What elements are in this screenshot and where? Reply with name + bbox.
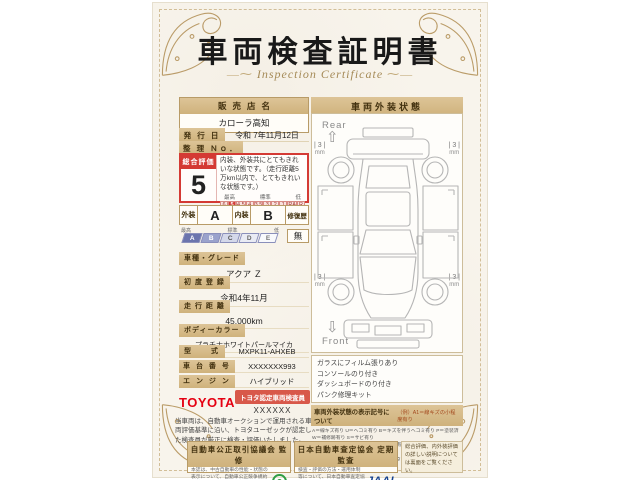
note-line: ガラスにフィルム張りあり	[317, 359, 457, 370]
evaluation-description: 内装、外装共にとてもきれいな状態です。（走行距離5万km以内で、とてもきれいな状…	[220, 157, 305, 193]
evaluation-scale-labels: 最高 標準 低	[220, 193, 305, 201]
certified-inspector-badge: トヨタ認定車両検査員	[235, 390, 310, 404]
repair-history-label: 修復歴	[286, 206, 308, 224]
interior-grade-label: 内装	[233, 206, 251, 224]
car-diagram-box: Rear ⇧ Front ⇩ | 3 | mm | 3 | mm | 3 | m…	[311, 113, 463, 353]
spec-value: XXXXXXX993	[235, 362, 309, 371]
spec-label: 車 台 番 号	[179, 360, 235, 373]
grade-scale-cell-e: E	[257, 233, 278, 243]
repair-history-value: 無	[287, 229, 309, 243]
fair-trade-text: 本誌は、中古自動車の性能・状態の表示について、自動車公正競争規約に基づき適正な表…	[191, 468, 270, 480]
screenshot-canvas: 車両検査証明書 Inspection Certificate 販売店名 カローラ…	[0, 0, 640, 480]
legend-example: （例）A1＝線キズの小程度有り	[397, 409, 460, 423]
spec-value: ハイブリッド	[235, 376, 309, 387]
issue-date-label: 発 行 日	[179, 128, 225, 142]
exterior-grade-value: A	[198, 206, 233, 224]
backside-note-text: 総合評価、内外装評価の詳しい説明については裏面をご覧ください。	[405, 444, 459, 476]
grade-scale-cell-b: B	[200, 233, 221, 243]
certificate-sheet: 車両検査証明書 Inspection Certificate 販売店名 カローラ…	[152, 2, 488, 478]
fair-trade-box: 自動車公正取引協議会 監修 本誌は、中古自動車の性能・状態の表示について、自動車…	[187, 441, 291, 473]
jaai-logo: JAAI	[367, 475, 394, 480]
fair-trade-logo-icon	[272, 474, 287, 480]
interior-grade-value: B	[251, 206, 286, 224]
car-topview-icon	[313, 124, 463, 349]
scale-label-mid: 標準	[260, 193, 271, 201]
backside-note-box: 総合評価、内外装評価の詳しい説明については裏面をご覧ください。	[401, 441, 463, 473]
spec-label: 型 式	[179, 345, 225, 358]
toyota-logo: TOYOTA	[179, 395, 235, 410]
spec-engine: エ ン ジ ン ハイブリッド	[179, 375, 309, 388]
inspector-id: XXXXXX	[253, 406, 291, 415]
spec-label: 車種・グレード	[179, 252, 245, 265]
spec-value: MXPK11-AHXEB	[225, 347, 309, 356]
grade-scale: 最高 標準 低 A B C D E 無	[179, 227, 309, 244]
fair-trade-title: 自動車公正取引協議会 監修	[188, 442, 290, 467]
left-column: 販売店名 カローラ高知 発 行 日 令和 7年11月12日 整 理 Ｎｏ． 総合…	[179, 3, 309, 477]
note-line: ダッシュボードのり付き	[317, 380, 457, 391]
overall-evaluation-box: 総合評価 5 内装、外装共にとてもきれいな状態です。（走行距離5万km以内で、と…	[179, 153, 309, 203]
jaai-text: 検査・評価の方法・運用体制等について、日本自動車査定協会による監査を定期的に受け…	[298, 468, 365, 480]
grade-scale-cell-a: A	[181, 233, 202, 243]
spec-label: 初 度 登 録	[179, 276, 230, 289]
overall-evaluation-score: 5	[181, 169, 216, 201]
jaai-title: 日本自動車査定協会 定期監査	[295, 442, 397, 467]
note-line: コンソールのり付き	[317, 370, 457, 381]
grade-scale-cell-c: C	[219, 233, 240, 243]
spec-label: ボディーカラー	[179, 324, 245, 337]
legend-title: 車両外装状態の表示記号について	[314, 407, 394, 425]
note-line: パンク修理キット	[317, 391, 457, 402]
exterior-grade-label: 外装	[180, 206, 198, 224]
scale-label-low: 低	[295, 193, 301, 201]
right-column: 車両外装状態 Rear ⇧ Front ⇩ | 3 | mm | 3 | mm …	[311, 3, 463, 477]
condition-notes-box: ガラスにフィルム張りあり コンソールのり付き ダッシュボードのり付き パンク修理…	[311, 355, 463, 403]
inspector-block: TOYOTA トヨタ認定車両検査員 XXXXXX	[179, 389, 309, 415]
spec-model-code: 型 式 MXPK11-AHXEB	[179, 345, 309, 358]
spec-label: 走 行 距 離	[179, 300, 230, 313]
jaai-box: 日本自動車査定協会 定期監査 検査・評価の方法・運用体制等について、日本自動車査…	[294, 441, 398, 473]
scale-label-high: 最高	[224, 193, 235, 201]
spec-label: エ ン ジ ン	[179, 375, 235, 388]
dealer-label: 販売店名	[180, 98, 308, 114]
grade-row: 外装 A 内装 B 修復歴	[179, 205, 309, 225]
spec-chassis-number: 車 台 番 号 XXXXXXX993	[179, 360, 309, 373]
grade-scale-cell-d: D	[238, 233, 259, 243]
overall-evaluation-label: 総合評価	[181, 155, 216, 169]
issue-date-value: 令和 7年11月12日	[225, 130, 309, 141]
